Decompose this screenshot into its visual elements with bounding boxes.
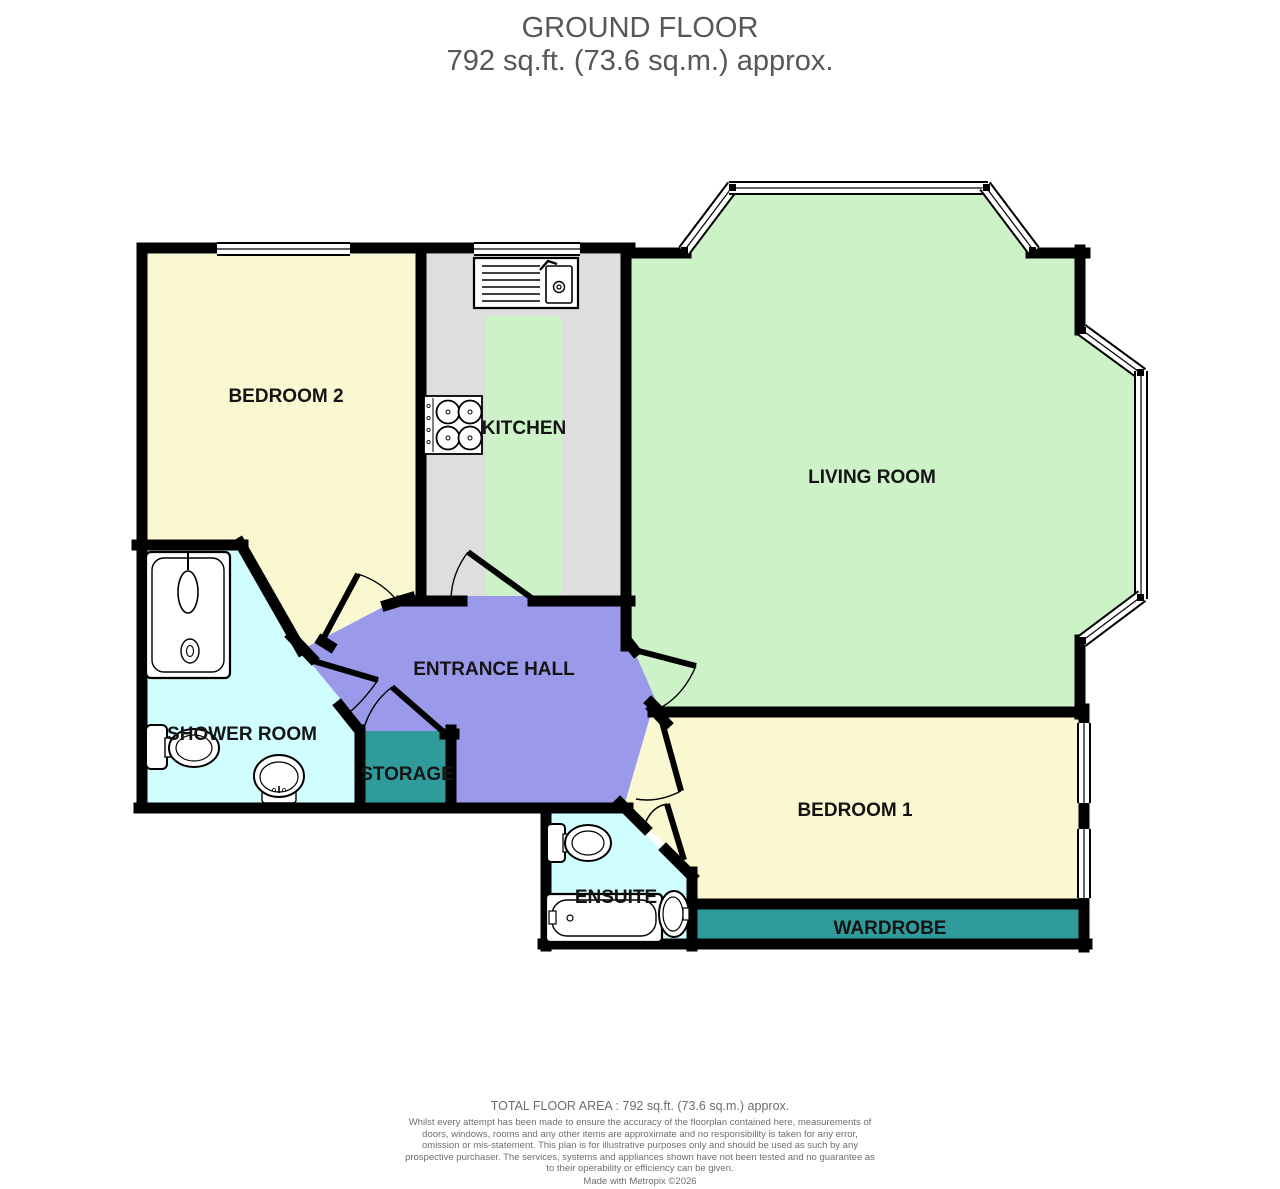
room-label-shower-room: SHOWER ROOM [167, 724, 317, 745]
shower-enclosure [146, 552, 230, 678]
kitchen-sink [474, 258, 578, 308]
room-living-floor [626, 188, 1141, 717]
room-label-ensuite: ENSUITE [575, 887, 657, 908]
disclaimer-text: Whilst every attempt has been made to en… [403, 1117, 877, 1175]
ensuite-basin [659, 891, 689, 937]
kitchen-green-strip [486, 316, 562, 601]
room-label-bedroom2: BEDROOM 2 [228, 386, 343, 407]
kitchen-hob [424, 396, 482, 454]
room-label-living-room: LIVING ROOM [808, 467, 936, 488]
floorplan-page: GROUND FLOOR 792 sq.ft. (73.6 sq.m.) app… [0, 0, 1280, 1189]
shower-room-basin [254, 755, 304, 803]
made-with-credit: Made with Metropix ©2026 [0, 1176, 1280, 1187]
plan-footer: TOTAL FLOOR AREA : 792 sq.ft. (73.6 sq.m… [0, 1099, 1280, 1187]
ensuite-toilet [547, 824, 611, 862]
room-label-bedroom1: BEDROOM 1 [797, 800, 913, 821]
floorplan-drawing: BEDROOM 2 KITCHEN LIVING ROOM ENTRANCE H… [0, 0, 1280, 1189]
total-floor-area: TOTAL FLOOR AREA : 792 sq.ft. (73.6 sq.m… [0, 1099, 1280, 1113]
room-label-entrance-hall: ENTRANCE HALL [413, 659, 575, 680]
room-label-kitchen: KITCHEN [482, 418, 566, 439]
room-label-wardrobe: WARDROBE [834, 918, 947, 939]
room-label-storage: STORAGE [360, 764, 454, 785]
